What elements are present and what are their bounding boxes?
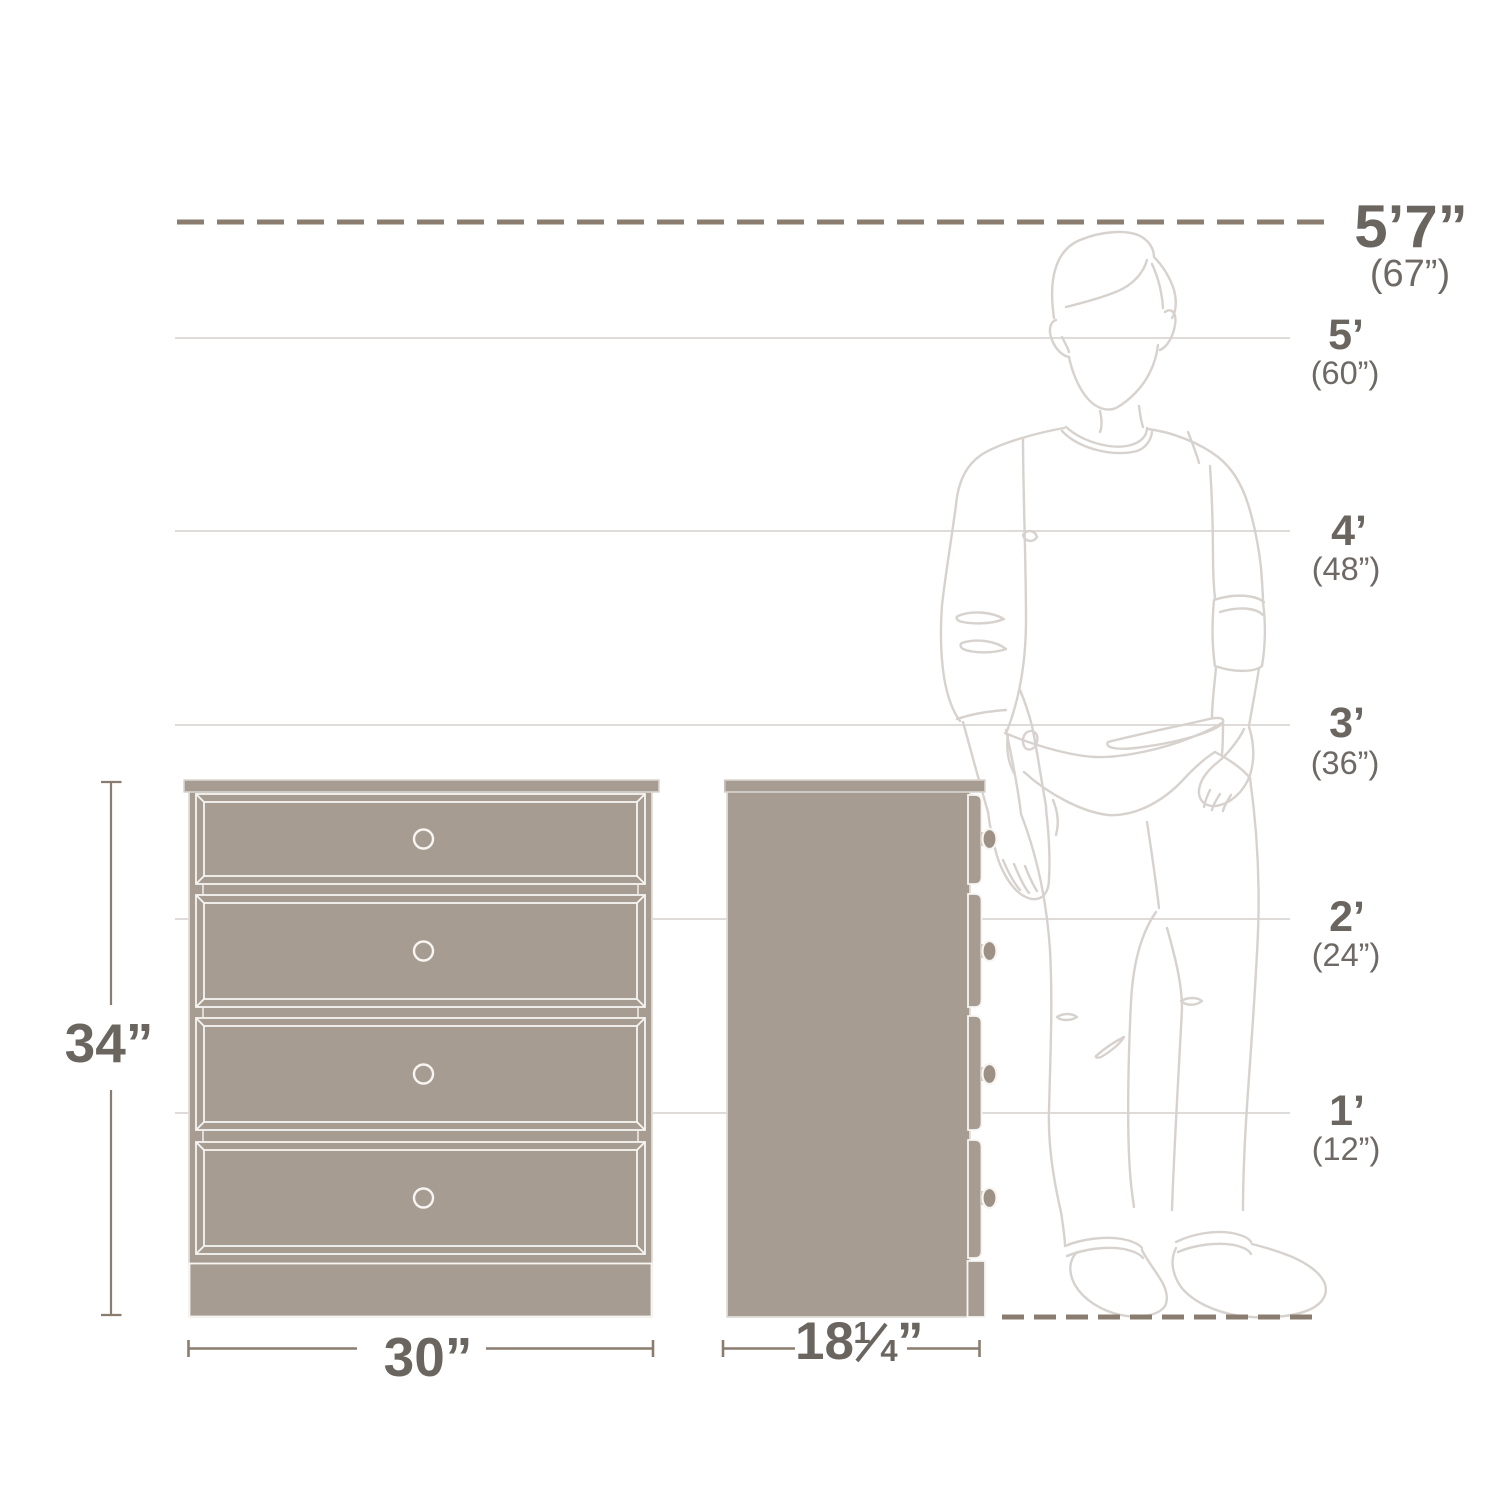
svg-text:34”: 34” [65,1012,154,1074]
svg-text:(67”): (67”) [1370,253,1450,295]
svg-text:3’: 3’ [1329,699,1365,747]
svg-text:5’: 5’ [1328,311,1364,359]
svg-text:4’: 4’ [1331,507,1367,555]
svg-text:4: 4 [880,1333,898,1368]
svg-text:(36”): (36”) [1311,745,1380,781]
svg-text:18: 18 [795,1312,854,1371]
svg-text:(12”): (12”) [1312,1131,1381,1167]
svg-text:(60”): (60”) [1311,355,1380,391]
svg-text:2’: 2’ [1329,893,1365,941]
svg-text:30”: 30” [384,1326,473,1388]
svg-text:1’: 1’ [1329,1087,1365,1135]
svg-text:”: ” [897,1312,924,1371]
svg-text:(48”): (48”) [1312,551,1381,587]
svg-text:5’7”: 5’7” [1354,193,1467,260]
svg-text:(24”): (24”) [1312,937,1381,973]
